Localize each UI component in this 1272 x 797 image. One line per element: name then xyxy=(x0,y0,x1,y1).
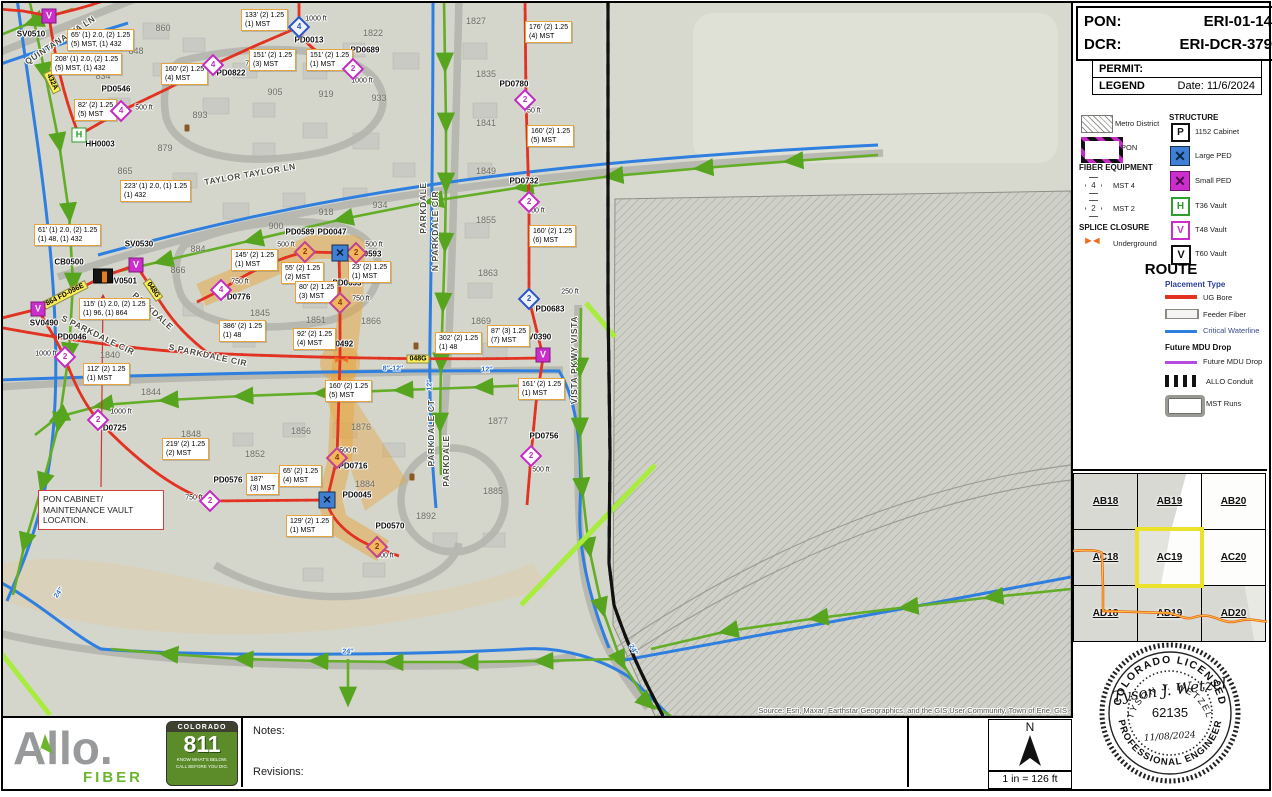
t48-vault-marker: V xyxy=(31,302,46,317)
pon-note-line1: PON CABINET/ xyxy=(43,494,159,505)
grid-cell-ab19[interactable]: AB19 xyxy=(1137,473,1202,530)
mst4-label: MST 4 xyxy=(1113,181,1135,190)
device-label: PD0046 xyxy=(58,333,87,342)
t60-vault-label: T60 Vault xyxy=(1195,249,1227,258)
device-label: PD0732 xyxy=(510,177,539,186)
pon-label: PON: xyxy=(1084,11,1122,34)
distance-label: 250 ft xyxy=(561,289,579,296)
placement-type-label: Placement Type xyxy=(1165,280,1225,289)
notes-cell[interactable]: Notes: Revisions: xyxy=(243,718,909,787)
revisions-label: Revisions: xyxy=(253,766,304,778)
t36-vault-label: T36 Vault xyxy=(1195,201,1227,210)
device-label: PD0047 xyxy=(318,228,347,237)
t48-vault-marker: V xyxy=(129,258,144,273)
hydrant-icon xyxy=(410,474,415,481)
allo-logo: Allo. FIBER xyxy=(11,720,171,786)
lot-number: 1845 xyxy=(250,308,270,318)
t48-vault-marker: V xyxy=(536,348,551,363)
route-id-badge: 048G xyxy=(406,355,429,364)
mst2-marker: 2 xyxy=(520,445,543,468)
metro-district-swatch xyxy=(1081,115,1113,133)
waterline-label: Critical Waterline xyxy=(1203,326,1259,335)
mst-runs-label: MST Runs xyxy=(1206,399,1241,408)
permit-label: PERMIT: xyxy=(1093,61,1261,78)
map-area[interactable]: 8608488348938798659059199331822182718351… xyxy=(3,3,1073,718)
mst2-marker-orange: 2 xyxy=(294,241,317,264)
pipe-size-label: 24″ xyxy=(53,586,65,599)
lot-number: 1841 xyxy=(476,118,496,128)
street-label: VISTA PKWY VISTA xyxy=(569,316,579,404)
scale-box: 1 in = 126 ft xyxy=(988,770,1072,789)
north-arrow-box: N xyxy=(988,719,1072,772)
street-label: PARKDALE xyxy=(441,435,451,486)
footage-callout: 208' (1) 2.0, (2) 1.25(5) MST, (1) 432 xyxy=(51,53,122,75)
footage-callout: 160' (2) 1.25(5) MST xyxy=(325,380,372,402)
pipe-size-label: 12″ xyxy=(427,379,434,390)
grid-cell-ac18[interactable]: AC18 xyxy=(1073,529,1138,586)
large-ped-icon: ✕ xyxy=(1170,146,1190,166)
cabinet-1152-label: 1152 Cabinet xyxy=(1195,127,1239,136)
lot-number: 918 xyxy=(318,207,333,217)
colorado-811-logo: COLORADO 811 KNOW WHAT'S BELOW. CALL BEF… xyxy=(166,721,238,786)
dcr-label: DCR: xyxy=(1084,34,1122,57)
distance-label: 750 ft xyxy=(352,296,370,303)
pon-legend-label: PON xyxy=(1121,143,1137,152)
route-title: ROUTE xyxy=(1073,261,1269,278)
large-ped-marker: ✕ xyxy=(319,492,336,509)
distance-label: 500 ft xyxy=(277,242,295,249)
device-label: SV0530 xyxy=(125,240,153,249)
grid-cell-ac19[interactable]: AC19 xyxy=(1137,529,1202,586)
lot-number: 893 xyxy=(192,110,207,120)
footage-callout: 61' (1) 2.0, (2) 1.25(1) 48, (1) 432 xyxy=(34,224,101,246)
t48-letter: V xyxy=(1177,225,1184,236)
footage-callout: 151' (2) 1.25(3) MST xyxy=(249,49,296,71)
t60-letter: V xyxy=(1177,249,1184,261)
footage-callout: 176' (2) 1.25(4) MST xyxy=(525,21,572,43)
svg-text:FIBER: FIBER xyxy=(83,769,143,786)
stamp-number: 62135 xyxy=(1152,705,1188,720)
mst2-marker: 2 xyxy=(54,346,77,369)
distance-label: 750 ft xyxy=(231,279,249,286)
lot-number: 1852 xyxy=(245,449,265,459)
lot-number: 879 xyxy=(157,143,172,153)
lot-number: 900 xyxy=(268,221,283,231)
grid-cell-ab20[interactable]: AB20 xyxy=(1201,473,1266,530)
svg-text:Allo.: Allo. xyxy=(13,722,113,774)
allo-conduit-label: ALLO Conduit xyxy=(1206,377,1253,386)
device-label: PD0689 xyxy=(351,46,380,55)
lot-number: 1892 xyxy=(416,511,436,521)
device-label: PD0570 xyxy=(376,522,405,531)
footage-callout: 160' (2) 1.25(5) MST xyxy=(527,125,574,147)
t36-vault-icon: H xyxy=(1171,197,1190,216)
grid-cell-ad20[interactable]: AD20 xyxy=(1201,585,1266,642)
dcr-value: ERI-DCR-379 xyxy=(1179,34,1272,57)
footage-callout: 65' (1) 2.0, (2) 1.25(5) MST, (1) 432 xyxy=(67,29,134,51)
small-ped-label: Small PED xyxy=(1195,176,1231,185)
fiber-equipment-title: FIBER EQUIPMENT xyxy=(1079,163,1153,172)
lot-number: 1840 xyxy=(100,350,120,360)
device-label: HH0003 xyxy=(85,140,114,149)
lot-number: 1855 xyxy=(476,215,496,225)
t36-letter: H xyxy=(1177,201,1184,212)
device-label: SV0510 xyxy=(17,30,45,39)
footage-callout: 65' (2) 1.25(4) MST xyxy=(279,465,322,487)
lot-number: 865 xyxy=(117,166,132,176)
title-legend-panel: PON:ERI-01-14 DCR:ERI-DCR-379 PERMIT: LE… xyxy=(1073,3,1269,787)
plan-sheet: 8608488348938798659059199331822182718351… xyxy=(0,0,1272,797)
footage-callout: 129' (2) 1.25(1) MST xyxy=(286,515,333,537)
mst2-label: MST 2 xyxy=(1113,204,1135,213)
feeder-fiber-label: Feeder Fiber xyxy=(1203,310,1246,319)
lot-number: 1856 xyxy=(291,426,311,436)
c811-number: 811 xyxy=(167,732,237,757)
grid-cell-ac20[interactable]: AC20 xyxy=(1201,529,1266,586)
device-label: PD0780 xyxy=(500,80,529,89)
ug-bore-swatch xyxy=(1165,295,1197,299)
device-label: PD0576 xyxy=(214,476,243,485)
distance-label: 500 ft xyxy=(135,105,153,112)
t48-vault-icon: V xyxy=(1171,221,1190,240)
footage-callout: 92' (2) 1.25(4) MST xyxy=(293,328,336,350)
pon-cabinet-marker xyxy=(93,269,113,284)
grid-cell-ad19[interactable]: AD19 xyxy=(1137,585,1202,642)
pon-value: ERI-01-14 xyxy=(1204,11,1272,34)
legend-date: Date: 11/6/2024 xyxy=(1178,80,1255,92)
lot-number: 1835 xyxy=(476,69,496,79)
t48-vault-marker: V xyxy=(42,9,57,24)
mst2-num: 2 xyxy=(1091,204,1095,213)
c811-line2: CALL BEFORE YOU DIG. xyxy=(167,764,237,770)
metro-district-label: Metro District xyxy=(1115,119,1159,128)
pe-stamp: COLORADO LICENSED PROFESSIONAL ENGINEER … xyxy=(1073,639,1267,787)
lot-number: 1849 xyxy=(476,166,496,176)
lot-number: 860 xyxy=(155,23,170,33)
c811-line1: KNOW WHAT'S BELOW. xyxy=(167,757,237,763)
mst4-icon: 4 xyxy=(1085,177,1102,194)
device-label: PD0546 xyxy=(102,85,131,94)
logo-cell: Allo. FIBER COLORADO 811 KNOW WHAT'S BEL… xyxy=(3,718,243,787)
street-label: PARKDALE xyxy=(418,182,428,233)
device-label: PD0683 xyxy=(536,305,565,314)
street-label: N PARKDALE CIR xyxy=(430,191,440,272)
mst-runs-swatch xyxy=(1165,395,1205,417)
mst2-icon: 2 xyxy=(1085,200,1102,217)
footage-callout: 187'(3) MST xyxy=(246,473,279,495)
grid-cell-ad18[interactable]: AD18 xyxy=(1073,585,1138,642)
grid-index-map[interactable]: AB18AB19AB20AC18AC19AC20AD18AD19AD20 xyxy=(1073,469,1267,641)
lot-number: 1844 xyxy=(141,387,161,397)
street-label: TAYLOR TAYLOR LN xyxy=(203,161,296,187)
distance-label: 1000 ft xyxy=(110,409,131,416)
lot-number: 919 xyxy=(318,89,333,99)
footage-callout: 112' (2) 1.25(1) MST xyxy=(83,363,130,385)
map-attribution: Source: Esri, Maxar, Earthstar Geographi… xyxy=(758,706,1067,715)
legend-title: LEGEND xyxy=(1099,80,1145,92)
footage-callout: 23' (2) 1.25(1) MST xyxy=(348,261,391,283)
footage-callout: 87' (3) 1.25(7) MST xyxy=(487,325,530,347)
north-label: N xyxy=(989,720,1071,734)
lot-number: 866 xyxy=(170,265,185,275)
future-mdu-title: Future MDU Drop xyxy=(1165,343,1231,352)
footage-callout: 386' (2) 1.25(1) 48 xyxy=(219,320,266,342)
lot-number: 1863 xyxy=(478,268,498,278)
splice-closure-title: SPLICE CLOSURE xyxy=(1079,223,1149,232)
feeder-fiber-swatch xyxy=(1165,309,1199,319)
lot-number: 1877 xyxy=(488,416,508,426)
lot-number: 1827 xyxy=(466,16,486,26)
future-mdu-label: Future MDU Drop xyxy=(1203,357,1262,366)
large-ped-marker: ✕ xyxy=(332,245,349,262)
mst4-num: 4 xyxy=(1091,181,1095,190)
hydrant-icon xyxy=(185,125,190,132)
small-ped-icon: ✕ xyxy=(1170,171,1190,191)
lot-number: 1885 xyxy=(483,486,503,496)
pon-cabinet-note: PON CABINET/ MAINTENANCE VAULT LOCATION. xyxy=(38,490,164,530)
waterline-swatch xyxy=(1165,330,1197,333)
future-mdu-swatch xyxy=(1165,361,1197,364)
footage-callout: 302' (2) 1.25(1) 48 xyxy=(435,332,482,354)
device-label: PD0589 xyxy=(286,228,315,237)
footage-callout: 145' (2) 1.25(1) MST xyxy=(231,249,278,271)
footage-callout: 133' (2) 1.25(1) MST xyxy=(241,9,288,31)
pipe-size-label: 24″ xyxy=(627,643,638,656)
device-label: SV0490 xyxy=(30,319,58,328)
underground-splice-icon: ►◄ xyxy=(1083,235,1099,247)
lot-number: 1851 xyxy=(306,315,326,325)
t48-vault-label: T48 Vault xyxy=(1195,225,1227,234)
lot-number: 934 xyxy=(372,200,387,210)
map-labels: 8608488348938798659059199331822182718351… xyxy=(3,3,1071,716)
cabinet-1152-icon: P xyxy=(1171,123,1190,142)
hydrant-icon xyxy=(414,343,419,350)
cabinet-icon-letter: P xyxy=(1177,127,1184,138)
grid-cell-ab18[interactable]: AB18 xyxy=(1073,473,1138,530)
footage-callout: 115' (1) 2.0, (2) 1.25(1) 96, (1) 864 xyxy=(79,298,150,320)
footer-bar: Allo. FIBER COLORADO 811 KNOW WHAT'S BEL… xyxy=(3,718,1071,787)
device-label: CB0500 xyxy=(54,258,83,267)
pon-note-line3: LOCATION. xyxy=(43,515,159,526)
footage-callout: 219' (2) 1.25(2) MST xyxy=(162,438,209,460)
underground-splice-marker: ►◄ xyxy=(333,355,347,366)
structure-title: STRUCTURE xyxy=(1169,113,1218,122)
lot-number: 905 xyxy=(267,87,282,97)
allo-conduit-swatch xyxy=(1165,375,1201,387)
distance-label: 1000 ft xyxy=(305,16,326,23)
distance-label: 500 ft xyxy=(532,467,550,474)
street-label: S PARKDALE CIR xyxy=(168,342,248,368)
footage-callout: 160' (2) 1.25(4) MST xyxy=(161,63,208,85)
underground-label: Underground xyxy=(1113,239,1157,248)
pipe-size-label: 24″ xyxy=(342,649,353,656)
ug-bore-label: UG Bore xyxy=(1203,293,1232,302)
pipe-size-label: 8″-12″ xyxy=(383,366,404,373)
lot-number: 1884 xyxy=(355,479,375,489)
lot-number: 1866 xyxy=(361,316,381,326)
large-ped-label: Large PED xyxy=(1195,151,1232,160)
lot-number: 884 xyxy=(190,244,205,254)
lot-number: 1822 xyxy=(363,28,383,38)
device-label: PD0045 xyxy=(343,491,372,500)
footage-callout: 223' (1) 2.0, (1) 1.25(1) 432 xyxy=(120,180,191,202)
sheet-border: 8608488348938798659059199331822182718351… xyxy=(1,1,1271,791)
mst2-marker: 2 xyxy=(199,490,222,513)
lot-number: 1876 xyxy=(351,422,371,432)
street-label: PARKDALE CT xyxy=(426,400,436,467)
pipe-size-label: 12″ xyxy=(481,367,492,374)
notes-label: Notes: xyxy=(253,725,285,737)
device-label: PD0822 xyxy=(217,69,246,78)
pon-note-line2: MAINTENANCE VAULT xyxy=(43,505,159,516)
north-arrow-icon xyxy=(1012,734,1048,768)
permit-box: PERMIT: LEGENDDate: 11/6/2024 xyxy=(1092,60,1262,95)
device-label: PD0756 xyxy=(530,432,559,441)
pon-swatch xyxy=(1081,137,1123,163)
t36-vault-marker: H xyxy=(72,128,87,143)
pon-dcr-box: PON:ERI-01-14 DCR:ERI-DCR-379 xyxy=(1076,6,1272,61)
lot-number: 933 xyxy=(371,93,386,103)
footage-callout: 161' (2) 1.25(1) MST xyxy=(518,378,565,400)
distance-label: 500 ft xyxy=(365,242,383,249)
footage-callout: 160' (2) 1.25(6) MST xyxy=(529,225,576,247)
